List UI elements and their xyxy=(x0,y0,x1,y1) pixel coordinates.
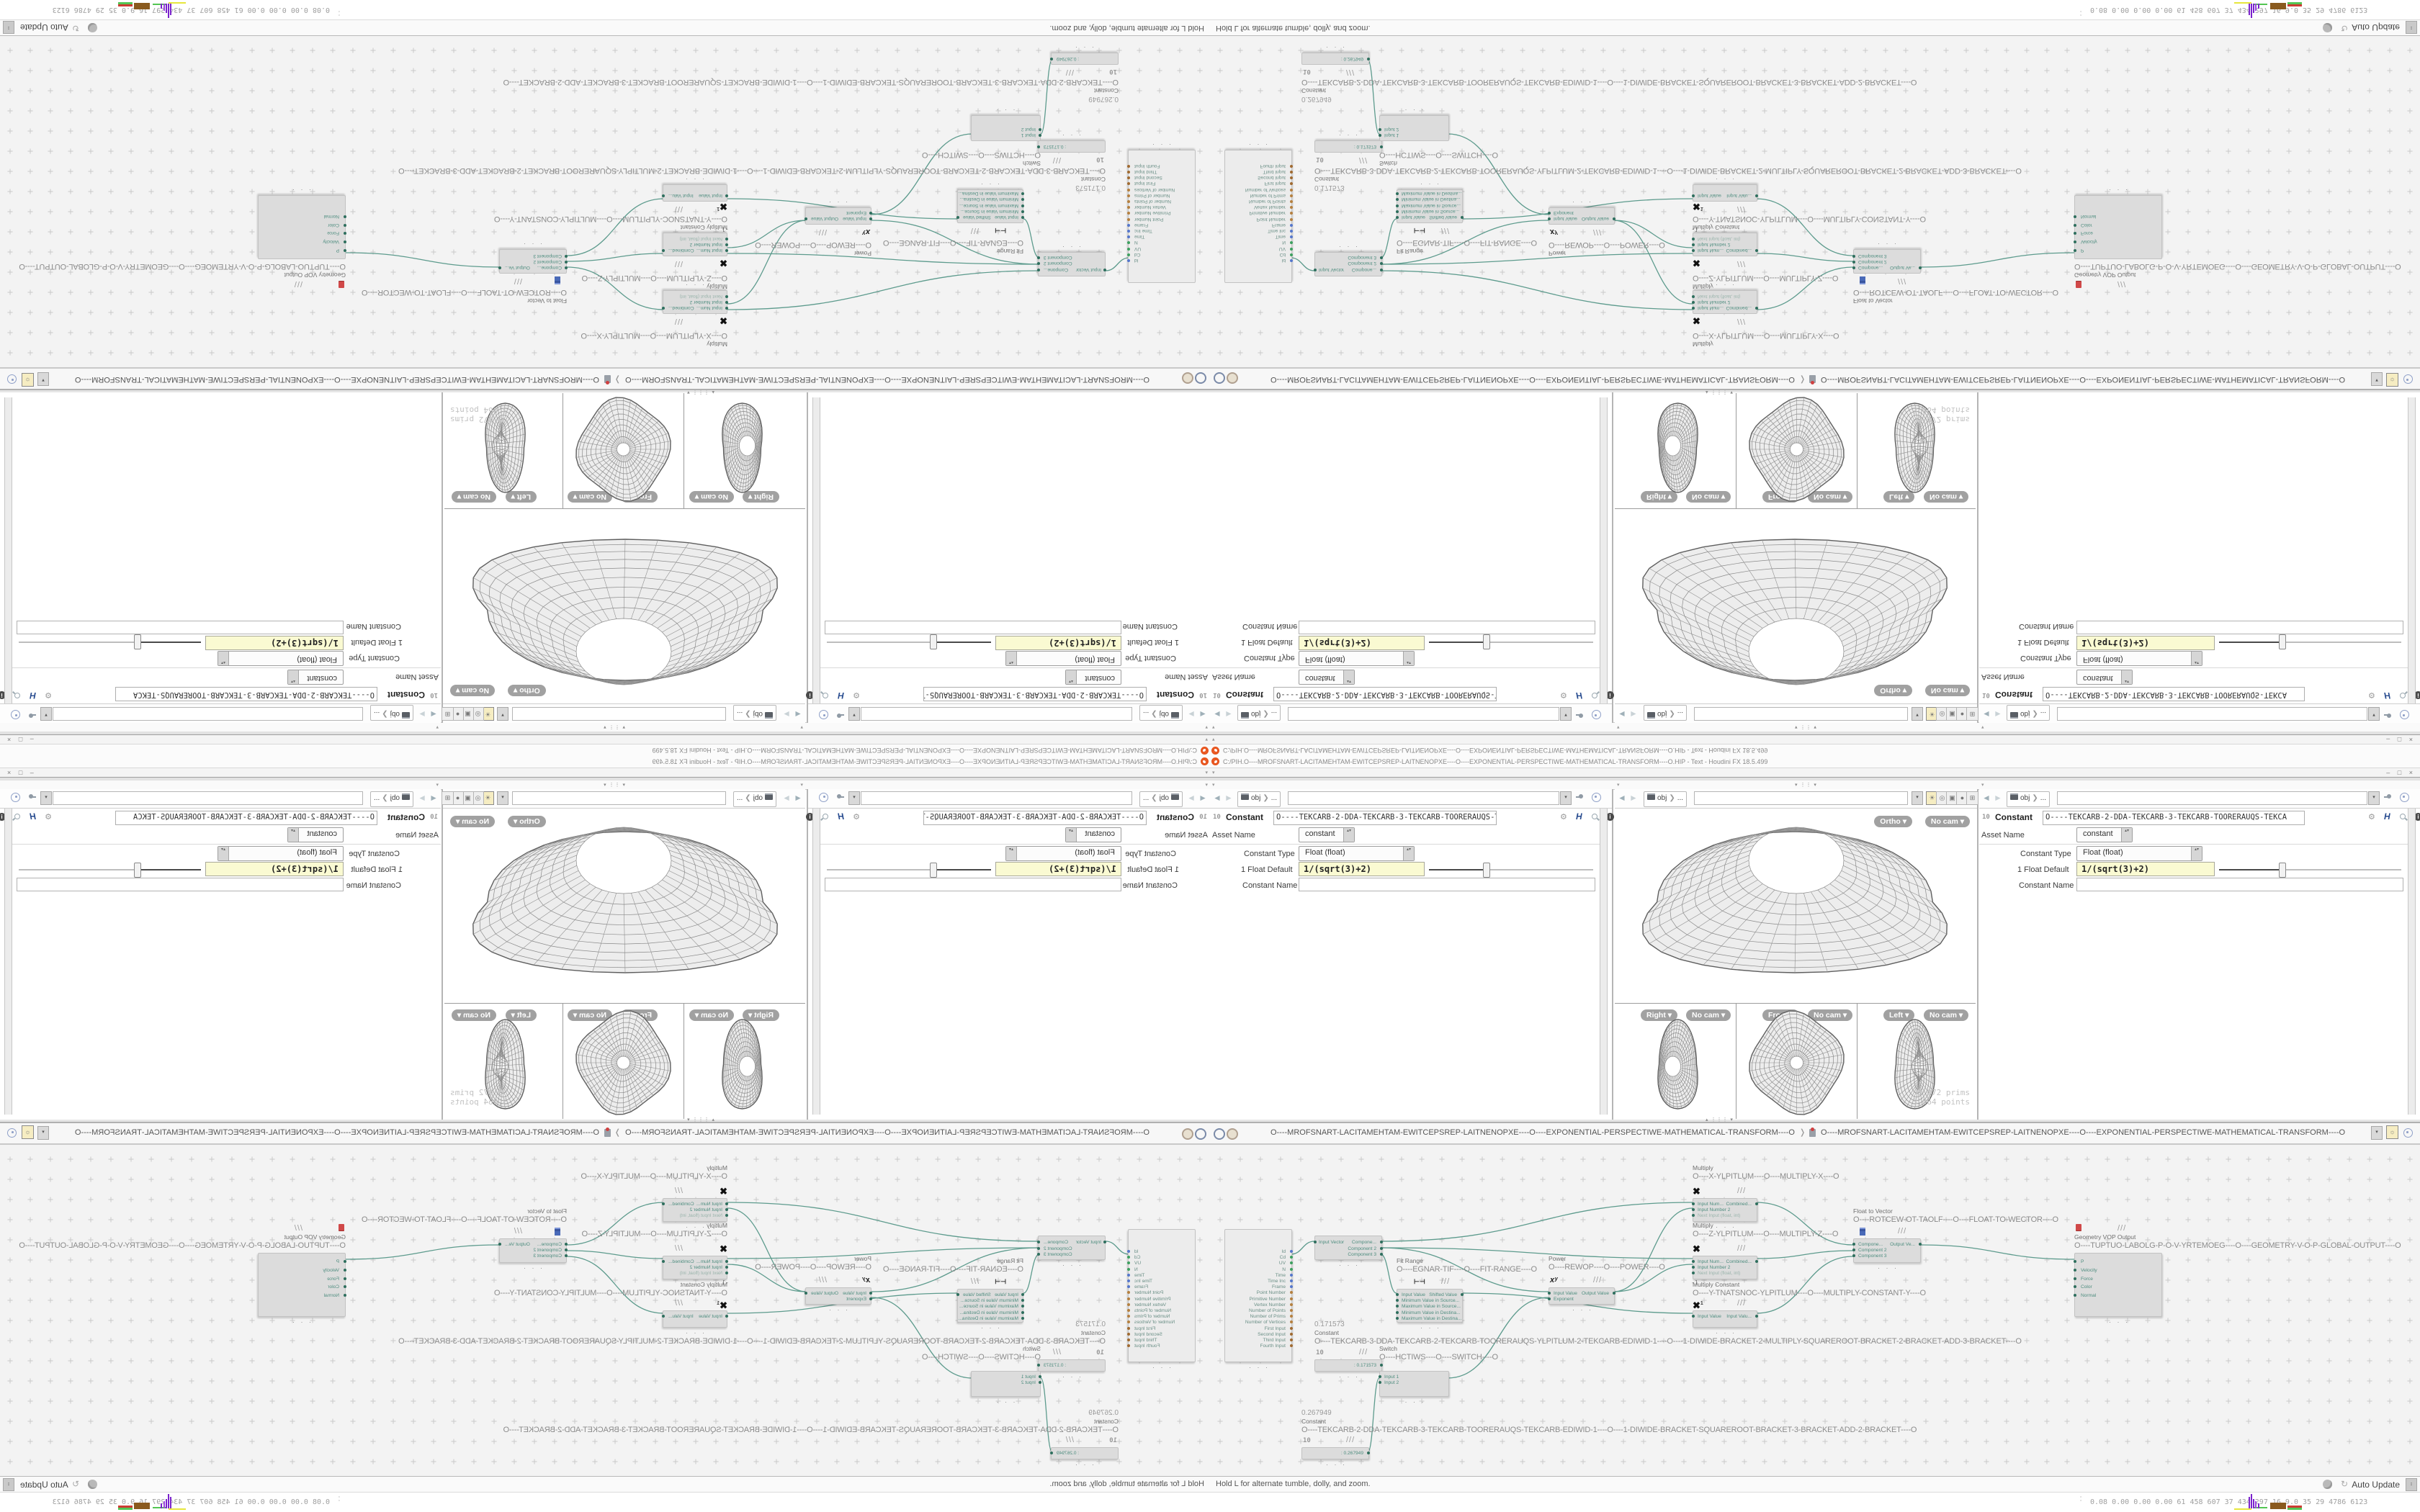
row-splitter[interactable]: ▴ ⋮⋮⋮ ▾ xyxy=(0,390,1210,392)
wire[interactable] xyxy=(1613,1208,1693,1292)
spinner-icon[interactable]: ▴▾ xyxy=(2191,847,2202,860)
viewport-grid-icon[interactable]: ⊞ xyxy=(1966,791,1978,805)
port-dot[interactable] xyxy=(725,238,728,240)
nav-forward-icon[interactable]: ► xyxy=(1187,709,1196,719)
node-fit[interactable]: Input ValueMinimum Value in Source...Max… xyxy=(957,1289,1023,1323)
houdini-help-icon[interactable]: H xyxy=(30,811,36,822)
port-dot[interactable] xyxy=(1290,248,1293,251)
update-mode-dropdown[interactable]: ↕ xyxy=(2406,1478,2417,1491)
constant-name-field[interactable] xyxy=(825,621,1121,634)
port-dot[interactable] xyxy=(565,261,568,264)
nav-forward-icon[interactable]: ► xyxy=(782,709,791,719)
node-gvog[interactable]: IdCdUVNTimeTime IncFramePoint NumberPrim… xyxy=(1224,1229,1292,1362)
port-dot[interactable] xyxy=(662,1260,665,1263)
gear-icon[interactable]: ⚙ xyxy=(45,812,52,822)
breadcrumb-more[interactable]: ... xyxy=(374,794,380,802)
breadcrumb[interactable]: obj❯... xyxy=(1644,791,1687,807)
pane-caret-icon[interactable]: ▾ xyxy=(800,724,803,730)
port-dot[interactable] xyxy=(725,249,728,252)
constant-name-field[interactable] xyxy=(1299,878,1595,891)
slider-handle[interactable] xyxy=(930,863,937,878)
port-dot[interactable] xyxy=(1396,198,1399,201)
wire[interactable] xyxy=(1291,258,1314,271)
pane-splitter-handle[interactable]: ▾ ⋮⋮ ▾ xyxy=(1795,782,1817,788)
viewport-ortho[interactable]: Ortho ▾No cam ▾ xyxy=(444,508,805,702)
port-dot[interactable] xyxy=(1396,192,1399,195)
port-dot[interactable] xyxy=(1021,204,1024,207)
port-dot[interactable] xyxy=(662,1315,665,1318)
breadcrumb-path-field[interactable] xyxy=(2057,791,2367,805)
node-gvout[interactable]: PVelocityForceColorNormal xyxy=(258,195,346,259)
node-const1[interactable]: : 0.171573 xyxy=(1314,140,1382,153)
port-dot[interactable] xyxy=(1021,210,1024,213)
collapse-caret-icon[interactable]: ▾ xyxy=(1212,770,1215,775)
breadcrumb-obj[interactable]: obj xyxy=(1251,710,1260,718)
port-dot[interactable] xyxy=(1021,216,1024,219)
minimize-button[interactable]: – xyxy=(27,769,34,776)
houdini-help-icon[interactable]: H xyxy=(838,690,844,701)
wire[interactable] xyxy=(1613,220,1693,304)
node-switch[interactable]: Input 1Input 2 xyxy=(1379,1371,1449,1397)
port-dot[interactable] xyxy=(725,194,728,197)
port-dot[interactable] xyxy=(2074,215,2076,218)
node-multc[interactable]: Input ValueInput Valu... xyxy=(663,184,727,202)
port-dot[interactable] xyxy=(1127,1297,1130,1300)
port-dot[interactable] xyxy=(1290,165,1293,168)
breadcrumb-more[interactable]: ... xyxy=(1271,710,1277,718)
wire[interactable] xyxy=(1106,258,1129,271)
wire[interactable] xyxy=(1381,253,1693,264)
port-dot[interactable] xyxy=(1367,1452,1370,1454)
bypass-flag-icon[interactable]: ✖1 xyxy=(1693,1300,1703,1309)
viewport-right[interactable]: Right ▾No cam ▾ xyxy=(685,393,805,508)
node-ftov[interactable]: Compone...Component 2Component 3Output V… xyxy=(499,1238,567,1263)
asset-name-dropdown[interactable]: constant▴▾ xyxy=(1065,827,1121,842)
collapse-caret-icon[interactable]: ▾ xyxy=(1205,737,1208,742)
port-dot[interactable] xyxy=(725,307,728,310)
port-dot[interactable] xyxy=(1290,1327,1293,1330)
breadcrumb-obj[interactable]: obj xyxy=(1657,794,1667,802)
nav-dropdown-button[interactable]: ▾ xyxy=(40,791,52,805)
port-dot[interactable] xyxy=(1692,1266,1695,1269)
port-dot[interactable] xyxy=(1852,255,1855,258)
float-default-slider[interactable] xyxy=(2219,642,2401,644)
port-dot[interactable] xyxy=(1755,194,1758,197)
port-dot[interactable] xyxy=(1755,1260,1758,1263)
param-scrollbar[interactable] xyxy=(812,809,820,1115)
stats-expander-icon[interactable]: ˆˆ xyxy=(339,1498,340,1505)
wire[interactable] xyxy=(1756,1251,1853,1259)
port-dot[interactable] xyxy=(498,266,501,269)
pin-icon[interactable] xyxy=(1576,794,1583,800)
breadcrumb-more[interactable]: ... xyxy=(1677,794,1683,802)
port-dot[interactable] xyxy=(1380,269,1383,271)
search-icon[interactable] xyxy=(821,691,828,698)
update-mode-dropdown[interactable]: ↕ xyxy=(3,1478,14,1491)
wire[interactable] xyxy=(727,271,1039,310)
gear-icon[interactable]: ⚙ xyxy=(1560,812,1567,822)
nav-forward-icon[interactable]: ► xyxy=(418,709,426,719)
param-scrollbar[interactable] xyxy=(812,397,820,703)
port-dot[interactable] xyxy=(2074,249,2076,252)
gear-icon[interactable]: ⚙ xyxy=(2368,812,2375,822)
port-dot[interactable] xyxy=(1461,216,1464,219)
nav-forward-icon[interactable]: ► xyxy=(1629,709,1638,719)
gear-icon[interactable]: ⚙ xyxy=(1560,690,1567,700)
network-canvas[interactable]: IdCdUVNTimeTime IncFramePoint NumberPrim… xyxy=(0,35,1210,367)
port-dot[interactable] xyxy=(565,1243,568,1246)
port-dot[interactable] xyxy=(1037,145,1040,148)
port-dot[interactable] xyxy=(1396,1293,1399,1296)
radial-menu-icon[interactable] xyxy=(7,374,17,384)
wire[interactable] xyxy=(567,199,664,256)
port-dot[interactable] xyxy=(1290,259,1293,262)
breadcrumb[interactable]: obj❯... xyxy=(370,791,413,807)
search-icon[interactable] xyxy=(13,691,20,698)
pane-caret-icon[interactable]: ▾ xyxy=(1617,782,1620,788)
restore-button[interactable]: □ xyxy=(16,736,22,743)
port-dot[interactable] xyxy=(1290,1274,1293,1277)
port-dot[interactable] xyxy=(1127,230,1130,233)
port-dot[interactable] xyxy=(1127,212,1130,215)
node-const2[interactable]: : 0.267949 xyxy=(1301,53,1369,65)
nav-back-icon[interactable]: ◄ xyxy=(1982,793,1991,803)
wire[interactable] xyxy=(567,253,664,261)
spinner-icon[interactable]: ▴▾ xyxy=(1006,847,1017,860)
breadcrumb-parent[interactable]: O----MROFSNART-LACITAMEHTAM-EWITCEPSREP-… xyxy=(625,1128,1180,1137)
display-flag-icon[interactable]: ☼ xyxy=(22,373,34,387)
port-dot[interactable] xyxy=(344,1269,346,1272)
wire[interactable] xyxy=(1368,60,1379,134)
asset-name-dropdown[interactable]: constant▴▾ xyxy=(287,670,344,685)
search-icon[interactable] xyxy=(2400,691,2407,698)
network-nav-icon[interactable] xyxy=(1195,1128,1206,1140)
node-name-field[interactable]: O----TEKCARB-2-DDA-TEKCARB-3-TEKCARB-TOO… xyxy=(2043,687,2305,701)
gear-icon[interactable]: ⚙ xyxy=(45,690,52,700)
refresh-icon[interactable]: ↻ xyxy=(72,1479,79,1489)
port-dot[interactable] xyxy=(1037,269,1040,271)
port-dot[interactable] xyxy=(1613,217,1615,220)
wire[interactable] xyxy=(1756,199,1853,256)
float-default-slider[interactable] xyxy=(1429,642,1593,644)
wire[interactable] xyxy=(567,1256,664,1313)
node-name-field[interactable]: O----TEKCARB-2-DDA-TEKCARB-3-TEKCARB-TOO… xyxy=(1273,687,1497,701)
port-dot[interactable] xyxy=(1127,200,1130,203)
port-dot[interactable] xyxy=(1127,1309,1130,1312)
breadcrumb-parent[interactable]: O----MROFSNART-LACITAMEHTAM-EWITCEPSREP-… xyxy=(625,375,1180,384)
restore-button[interactable]: □ xyxy=(2398,769,2404,776)
node-gvog[interactable]: IdCdUVNTimeTime IncFramePoint NumberPrim… xyxy=(1128,150,1196,283)
refresh-icon[interactable]: ↻ xyxy=(2341,1479,2348,1489)
search-icon[interactable] xyxy=(13,814,20,821)
globe-icon[interactable] xyxy=(2323,23,2332,32)
param-scrollbar[interactable] xyxy=(2408,397,2416,703)
breadcrumb-current[interactable]: O----MROFSNART-LACITAMEHTAM-EWITCEPSREP-… xyxy=(52,375,599,384)
wire[interactable] xyxy=(1041,60,1052,134)
node-power[interactable]: Input ValueExponentOutput Value xyxy=(805,207,871,225)
breadcrumb-path-field[interactable] xyxy=(512,791,726,805)
port-dot[interactable] xyxy=(956,1293,959,1296)
port-dot[interactable] xyxy=(1021,1317,1024,1320)
spinner-icon[interactable]: ▴▾ xyxy=(1403,847,1414,860)
pane-splitter-handle[interactable]: ▾ ⋮⋮ ▾ xyxy=(603,724,625,730)
breadcrumb-obj[interactable]: obj xyxy=(1160,710,1169,718)
viewport-grid-icon[interactable]: ⊞ xyxy=(442,791,454,805)
port-dot[interactable] xyxy=(1290,1333,1293,1336)
radial-menu-icon[interactable] xyxy=(2400,710,2409,719)
port-dot[interactable] xyxy=(2074,224,2076,227)
slider-handle[interactable] xyxy=(930,634,937,649)
houdini-help-icon[interactable]: H xyxy=(1576,811,1582,822)
network-nav-icon[interactable] xyxy=(1214,1128,1225,1140)
port-dot[interactable] xyxy=(1852,266,1855,269)
wire[interactable] xyxy=(1381,1202,1693,1241)
breadcrumb[interactable]: obj❯... xyxy=(1139,791,1183,807)
breadcrumb-obj[interactable]: obj xyxy=(2020,794,2030,802)
pane-caret-icon[interactable]: ▾ xyxy=(1205,782,1208,788)
nav-back-icon[interactable]: ◄ xyxy=(429,709,438,719)
port-dot[interactable] xyxy=(1380,1247,1383,1250)
nav-back-icon[interactable]: ◄ xyxy=(1198,709,1207,719)
wire[interactable] xyxy=(1919,253,2074,267)
viewport-ortho[interactable]: Ortho ▾No cam ▾ xyxy=(1615,810,1976,1004)
node-const2[interactable]: : 0.267949 xyxy=(1051,53,1119,65)
bypass-flag-icon[interactable]: ✖ xyxy=(720,1188,727,1195)
pin-icon[interactable] xyxy=(29,794,36,800)
constant-type-dropdown[interactable]: Float (float)▴▾ xyxy=(1005,846,1121,861)
constant-name-field[interactable] xyxy=(1299,621,1595,634)
port-dot[interactable] xyxy=(869,1292,872,1295)
wire[interactable] xyxy=(727,1202,1039,1241)
breadcrumb-path-field[interactable] xyxy=(861,707,1132,721)
port-dot[interactable] xyxy=(2074,240,2076,243)
splitter-handle[interactable]: ▴ ⋮⋮⋮ ▾ xyxy=(1706,390,1734,395)
viewport-grid-icon[interactable]: ⊞ xyxy=(442,707,454,721)
node-multx[interactable]: Input Num...Input Number 2Next Input (fl… xyxy=(1693,1198,1757,1222)
port-dot[interactable] xyxy=(2074,1294,2076,1297)
port-dot[interactable] xyxy=(1548,1297,1551,1300)
node-switch[interactable]: Input 1Input 2 xyxy=(971,1371,1041,1397)
port-dot[interactable] xyxy=(1290,224,1293,227)
bypass-flag-icon[interactable]: ✖ xyxy=(1693,317,1700,324)
window-controls[interactable]: – □ × xyxy=(4,736,34,743)
pane-caret-icon[interactable]: ▾ xyxy=(1981,724,1984,730)
float-default-slider[interactable] xyxy=(1429,868,1593,870)
port-dot[interactable] xyxy=(1380,1364,1383,1367)
bypass-flag-icon[interactable]: ✖ xyxy=(1693,1246,1700,1253)
port-dot[interactable] xyxy=(662,307,665,310)
port-dot[interactable] xyxy=(869,212,872,215)
float-default-slider[interactable] xyxy=(827,642,991,644)
port-dot[interactable] xyxy=(1021,1311,1024,1314)
node-vtof[interactable]: Input VectorCompone...Component 2Compone… xyxy=(1038,252,1106,276)
port-dot[interactable] xyxy=(1396,1299,1399,1302)
port-dot[interactable] xyxy=(1692,1260,1695,1263)
node-gvout[interactable]: PVelocityForceColorNormal xyxy=(2074,1253,2162,1317)
port-dot[interactable] xyxy=(1314,269,1317,271)
display-flag-icon[interactable]: ☼ xyxy=(2386,373,2398,387)
port-dot[interactable] xyxy=(1037,1247,1040,1250)
float-default-field[interactable]: 1/(sqrt(3)+2) xyxy=(995,862,1121,876)
constant-type-dropdown[interactable]: Float (float)▴▾ xyxy=(1299,846,1415,861)
port-dot[interactable] xyxy=(1127,1256,1130,1259)
port-dot[interactable] xyxy=(1127,1250,1130,1253)
port-dot[interactable] xyxy=(1461,1293,1464,1296)
breadcrumb-parent[interactable]: O----MROFSNART-LACITAMEHTAM-EWITCEPSREP-… xyxy=(1240,1128,1795,1137)
constant-type-dropdown[interactable]: Float (float)▴▾ xyxy=(1005,651,1121,666)
wire[interactable] xyxy=(1381,1248,1693,1259)
node-multc[interactable]: Input ValueInput Valu... xyxy=(1693,1310,1757,1328)
port-dot[interactable] xyxy=(2074,1285,2076,1288)
port-dot[interactable] xyxy=(2074,1269,2076,1272)
stats-expander-icon[interactable]: ˆˆ xyxy=(2080,1498,2081,1505)
breadcrumb-more[interactable]: ... xyxy=(1143,710,1149,718)
breadcrumb-path-field[interactable] xyxy=(1694,791,1908,805)
port-dot[interactable] xyxy=(1290,1297,1293,1300)
pane-caret-icon[interactable]: ▾ xyxy=(1212,782,1215,788)
nav-forward-icon[interactable]: ► xyxy=(418,793,426,803)
port-dot[interactable] xyxy=(1127,1261,1130,1264)
bypass-flag-icon[interactable]: ✖1 xyxy=(717,203,727,212)
close-button[interactable]: × xyxy=(2409,769,2416,776)
restore-button[interactable]: □ xyxy=(16,769,22,776)
constant-type-dropdown[interactable]: Float (float)▴▾ xyxy=(2076,651,2202,666)
port-dot[interactable] xyxy=(1290,1279,1293,1282)
radial-menu-icon[interactable] xyxy=(1592,793,1601,802)
port-dot[interactable] xyxy=(1314,1241,1317,1243)
breadcrumb-obj[interactable]: obj xyxy=(390,794,400,802)
pane-caret-icon[interactable]: ▾ xyxy=(1212,724,1215,730)
breadcrumb-obj[interactable]: obj xyxy=(753,710,763,718)
pin-icon[interactable] xyxy=(1576,712,1583,718)
viewport-right[interactable]: Right ▾No cam ▾ xyxy=(1615,1004,1735,1119)
port-dot[interactable] xyxy=(1692,194,1695,197)
port-dot[interactable] xyxy=(1037,1253,1040,1256)
pane-splitter-handle[interactable]: ▾ ⋮⋮ ▾ xyxy=(1795,724,1817,730)
wire[interactable] xyxy=(727,1208,807,1292)
port-dot[interactable] xyxy=(1548,217,1551,220)
node-fit[interactable]: Input ValueMinimum Value in Source...Max… xyxy=(1397,1289,1463,1323)
port-dot[interactable] xyxy=(344,215,346,218)
port-dot[interactable] xyxy=(1396,210,1399,213)
spinner-icon[interactable]: ▴▾ xyxy=(288,828,299,842)
port-dot[interactable] xyxy=(1692,238,1695,240)
port-dot[interactable] xyxy=(1755,249,1758,252)
port-dot[interactable] xyxy=(565,266,568,269)
node-switch[interactable]: Input 1Input 2 xyxy=(1379,115,1449,141)
port-dot[interactable] xyxy=(1127,1320,1130,1323)
port-dot[interactable] xyxy=(1127,1344,1130,1347)
houdini-help-icon[interactable]: H xyxy=(838,811,844,822)
port-dot[interactable] xyxy=(1039,134,1041,137)
port-dot[interactable] xyxy=(1755,1202,1758,1205)
port-dot[interactable] xyxy=(1127,194,1130,197)
node-fit[interactable]: Input ValueMinimum Value in Source...Max… xyxy=(957,189,1023,223)
port-dot[interactable] xyxy=(1127,1303,1130,1306)
node-ftov[interactable]: Compone...Component 2Component 3Output V… xyxy=(1853,249,1921,274)
port-dot[interactable] xyxy=(2074,1277,2076,1280)
breadcrumb-path-field[interactable] xyxy=(1288,791,1559,805)
float-default-slider[interactable] xyxy=(827,868,991,870)
port-dot[interactable] xyxy=(1037,1364,1040,1367)
network-canvas[interactable]: IdCdUVNTimeTime IncFramePoint NumberPrim… xyxy=(0,1145,1210,1477)
float-default-slider[interactable] xyxy=(19,868,201,870)
close-button[interactable]: × xyxy=(4,736,11,743)
search-icon[interactable] xyxy=(1592,814,1599,821)
radial-menu-icon[interactable] xyxy=(819,710,828,719)
breadcrumb[interactable]: obj❯... xyxy=(733,791,776,807)
breadcrumb-obj[interactable]: obj xyxy=(2020,710,2030,718)
port-dot[interactable] xyxy=(1127,1279,1130,1282)
port-dot[interactable] xyxy=(1127,1274,1130,1277)
port-dot[interactable] xyxy=(1755,307,1758,310)
breadcrumb[interactable]: obj❯... xyxy=(2007,791,2050,807)
node-power[interactable]: Input ValueExponentOutput Value xyxy=(805,1287,871,1305)
port-dot[interactable] xyxy=(344,1260,346,1263)
wire[interactable] xyxy=(346,253,501,267)
port-dot[interactable] xyxy=(1852,1254,1855,1257)
constant-name-field[interactable] xyxy=(2076,878,2403,891)
bypass-flag-icon[interactable]: ✖1 xyxy=(1693,203,1703,212)
viewport-right[interactable]: Right ▾No cam ▾ xyxy=(685,1004,805,1119)
port-dot[interactable] xyxy=(1127,165,1130,168)
nav-dropdown-button[interactable]: ▾ xyxy=(2368,707,2380,721)
houdini-help-icon[interactable]: H xyxy=(2384,690,2390,701)
wire[interactable] xyxy=(1756,1256,1853,1313)
wire[interactable] xyxy=(1291,1241,1314,1254)
spinner-icon[interactable]: ▴▾ xyxy=(218,847,229,860)
nav-forward-icon[interactable]: ► xyxy=(782,793,791,803)
asset-name-dropdown[interactable]: constant▴▾ xyxy=(1065,670,1121,685)
radial-menu-icon[interactable] xyxy=(819,793,828,802)
port-dot[interactable] xyxy=(1755,1315,1758,1318)
wire[interactable] xyxy=(346,1245,501,1259)
node-const1[interactable]: : 0.171573 xyxy=(1038,1359,1106,1372)
port-dot[interactable] xyxy=(1852,1248,1855,1251)
constant-name-field[interactable] xyxy=(2076,621,2403,634)
breadcrumb-more[interactable]: ... xyxy=(374,710,380,718)
port-dot[interactable] xyxy=(1290,1268,1293,1271)
node-multc[interactable]: Input ValueInput Valu... xyxy=(1693,184,1757,202)
slider-handle[interactable] xyxy=(134,634,141,649)
asset-name-dropdown[interactable]: constant▴▾ xyxy=(1299,827,1355,842)
path-dropdown-button[interactable]: ▾ xyxy=(2371,372,2383,386)
bypass-flag-icon[interactable]: ✖ xyxy=(720,259,727,266)
spinner-icon[interactable]: ▴▾ xyxy=(1066,670,1077,684)
spinner-icon[interactable]: ▴▾ xyxy=(288,670,299,684)
breadcrumb-more[interactable]: ... xyxy=(1143,794,1149,802)
radial-menu-icon[interactable] xyxy=(2403,374,2413,384)
port-dot[interactable] xyxy=(1290,1309,1293,1312)
refresh-icon[interactable]: ↻ xyxy=(2341,23,2348,33)
update-mode-dropdown[interactable]: ↕ xyxy=(3,21,14,34)
port-dot[interactable] xyxy=(956,216,959,219)
breadcrumb-obj[interactable]: obj xyxy=(1657,710,1667,718)
viewport-front[interactable]: Front ▾No cam ▾ xyxy=(1736,393,1857,508)
port-dot[interactable] xyxy=(1127,241,1130,244)
param-scrollbar[interactable] xyxy=(1600,809,1608,1115)
breadcrumb[interactable]: obj❯... xyxy=(1139,705,1183,721)
port-dot[interactable] xyxy=(344,249,346,252)
pane-caret-icon[interactable]: ▾ xyxy=(436,782,439,788)
node-name-field[interactable]: O----TEKCARB-2-DDA-TEKCARB-3-TEKCARB-TOO… xyxy=(2043,811,2305,825)
search-icon[interactable] xyxy=(821,814,828,821)
port-dot[interactable] xyxy=(1127,1327,1130,1330)
port-dot[interactable] xyxy=(1037,1241,1040,1243)
node-multx[interactable]: Input Num...Input Number 2Next Input (fl… xyxy=(1693,290,1757,314)
breadcrumb-path-field[interactable] xyxy=(861,791,1132,805)
close-button[interactable]: × xyxy=(2409,736,2416,743)
